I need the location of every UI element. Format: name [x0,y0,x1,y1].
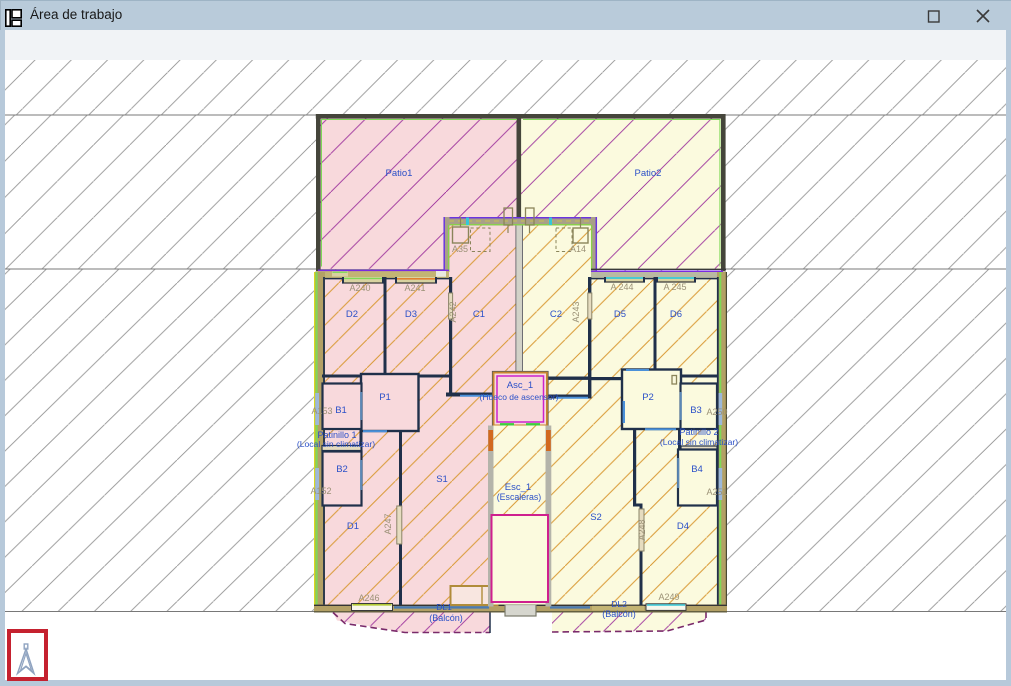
svg-text:A240: A240 [349,283,370,293]
svg-text:(Escaleras): (Escaleras) [497,492,542,502]
svg-text:(Local sin climatizar): (Local sin climatizar) [297,439,375,449]
svg-text:D5: D5 [614,309,626,320]
svg-text:D6: D6 [670,309,682,320]
svg-text:Patio1: Patio1 [386,168,413,179]
svg-text:DL1: DL1 [436,602,452,612]
svg-text:S1: S1 [436,474,448,485]
svg-text:Patio2: Patio2 [635,168,662,179]
svg-text:(Balcón): (Balcón) [602,609,636,619]
svg-text:B4: B4 [691,464,703,475]
svg-text:B1: B1 [335,405,347,416]
svg-text:A242: A242 [448,301,458,322]
svg-text:C1: C1 [473,309,485,320]
svg-text:D3: D3 [405,309,417,320]
svg-text:(Balcón): (Balcón) [429,613,463,623]
svg-text:Asc_1: Asc_1 [507,380,533,391]
svg-text:A35: A35 [452,244,468,254]
svg-text:D1: D1 [347,521,359,532]
svg-text:P2: P2 [642,392,654,403]
svg-text:B2: B2 [336,464,348,475]
svg-text:(Local sin climatizar): (Local sin climatizar) [660,437,738,447]
svg-text:A246: A246 [358,593,379,603]
svg-text:D2: D2 [346,309,358,320]
svg-text:C2: C2 [550,309,562,320]
svg-text:DL2: DL2 [611,599,627,609]
svg-text:A249: A249 [658,592,679,602]
svg-text:S2: S2 [590,512,602,523]
svg-text:A 244: A 244 [610,282,633,292]
svg-text:A247: A247 [383,513,393,534]
svg-text:B3: B3 [690,405,702,416]
svg-text:A14: A14 [570,244,586,254]
svg-text:A 245: A 245 [663,282,686,292]
svg-text:A250: A250 [706,407,727,417]
svg-text:Patinillo 2: Patinillo 2 [679,427,718,437]
svg-text:(Hueco de ascensor): (Hueco de ascensor) [480,392,559,402]
svg-text:A153: A153 [311,406,332,416]
svg-text:A241: A241 [404,283,425,293]
svg-text:D4: D4 [677,521,689,532]
svg-text:P1: P1 [379,392,391,403]
svg-text:A243: A243 [571,301,581,322]
svg-text:A251: A251 [706,487,727,497]
svg-text:A248: A248 [637,519,647,540]
svg-text:A152: A152 [310,486,331,496]
